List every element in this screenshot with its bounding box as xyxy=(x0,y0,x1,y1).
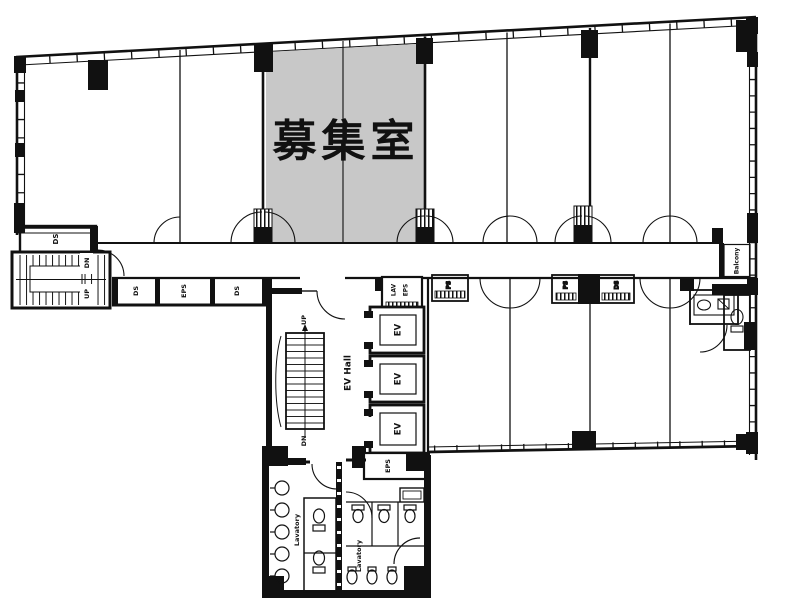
upper-rooms: 募集室 xyxy=(17,20,756,243)
ev-stair-dn-label: DN xyxy=(300,436,308,447)
ps2-label: PS xyxy=(564,281,570,289)
ps-closet-label: PS xyxy=(447,281,453,289)
shaft-ds1-label: DS xyxy=(132,286,140,296)
sink-icon xyxy=(698,300,711,310)
lav-label: LAV xyxy=(392,283,398,296)
lavatory-left-label: Lavatory xyxy=(293,513,301,546)
shaft-eps-label: EPS xyxy=(180,284,188,298)
toilet-icon xyxy=(731,310,743,325)
vacant-room-label: 募集室 xyxy=(272,116,420,167)
nw-stair-dn-label: DN xyxy=(83,258,91,269)
elevator-hall: UP DN EV Hall LAV EPS EV xyxy=(262,277,428,479)
balcony: Balcony xyxy=(719,243,750,278)
service-shafts-row: DS EPS DS xyxy=(112,278,270,306)
balcony-label: Balcony xyxy=(734,248,741,275)
ds-room-label: DS xyxy=(52,234,60,245)
wc-room xyxy=(712,284,756,350)
corridor xyxy=(96,206,756,278)
lav-eps-label: EPS xyxy=(404,284,410,296)
ev-hall-label: EV Hall xyxy=(344,355,354,391)
elevator-2: EV xyxy=(364,356,424,402)
left-lavatory: Lavatory xyxy=(270,481,336,592)
ev-stair-up-label: UP xyxy=(300,315,308,325)
elevators: EV EV EV xyxy=(364,307,424,453)
ds3-label: DS xyxy=(615,281,621,290)
floor-plan: 募集室 Balcony xyxy=(0,0,787,606)
urinal-icon xyxy=(387,570,397,584)
ev2-label: EV xyxy=(394,372,404,385)
shaft-ds2-label: DS xyxy=(233,286,241,296)
lower-right-rooms: PS PS DS xyxy=(428,274,756,452)
elevator-1: EV xyxy=(364,307,424,353)
ev3-label: EV xyxy=(394,422,404,435)
northwest-stairwell: DS DN UP xyxy=(12,226,110,308)
elevator-3: EV xyxy=(364,405,424,453)
lavatory-right-label: Lavatory xyxy=(355,539,363,572)
nw-stair-up-label: UP xyxy=(83,289,91,299)
ev1-label: EV xyxy=(394,323,404,336)
urinal-icon xyxy=(367,570,377,584)
eps-room-label: EPS xyxy=(384,459,392,473)
floor-plan-svg: 募集室 Balcony xyxy=(0,0,787,606)
